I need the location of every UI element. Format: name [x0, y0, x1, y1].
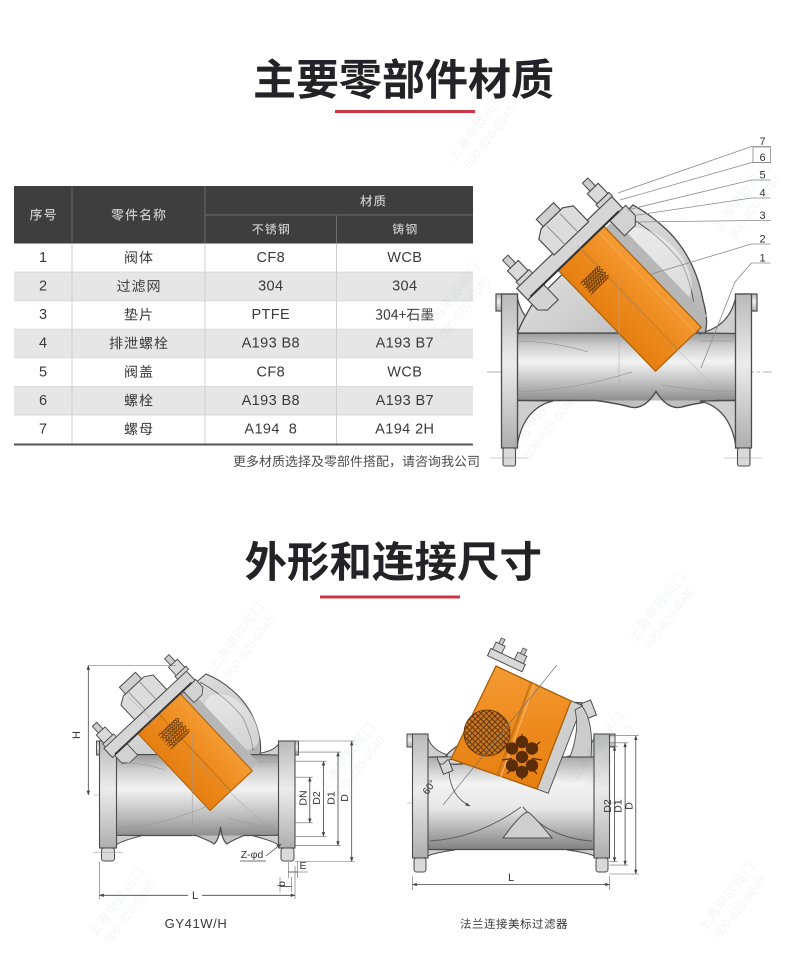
- svg-text:A193 B8: A193 B8: [242, 393, 300, 409]
- svg-text:A193 B7: A193 B7: [376, 336, 434, 352]
- svg-text:A194 8: A194 8: [244, 422, 297, 438]
- svg-text:3: 3: [759, 210, 765, 222]
- svg-text:D: D: [623, 802, 635, 810]
- svg-text:A193 B8: A193 B8: [242, 336, 300, 352]
- svg-text:Z-φd: Z-φd: [241, 849, 264, 861]
- svg-text:7: 7: [39, 422, 47, 438]
- svg-text:CF8: CF8: [257, 250, 286, 266]
- svg-text:2: 2: [759, 234, 765, 246]
- svg-text:7: 7: [759, 136, 765, 148]
- svg-text:5: 5: [39, 364, 47, 380]
- svg-text:304: 304: [392, 279, 417, 295]
- svg-text:DN: DN: [297, 790, 309, 805]
- svg-text:2: 2: [39, 279, 47, 295]
- svg-text:WCB: WCB: [387, 364, 422, 380]
- svg-text:A194 2H: A194 2H: [375, 422, 434, 438]
- svg-text:b: b: [276, 881, 288, 887]
- svg-text:L: L: [508, 872, 514, 884]
- svg-text:6: 6: [39, 393, 47, 409]
- svg-text:WCB: WCB: [387, 250, 422, 266]
- svg-text:1: 1: [39, 250, 47, 266]
- svg-text:3: 3: [39, 307, 47, 323]
- svg-text:304: 304: [258, 279, 283, 295]
- svg-text:1: 1: [759, 253, 765, 265]
- svg-text:CF8: CF8: [257, 364, 286, 380]
- svg-text:PTFE: PTFE: [251, 307, 290, 323]
- svg-text:H: H: [71, 731, 83, 739]
- svg-text:L: L: [192, 890, 198, 902]
- svg-text:D2: D2: [311, 791, 323, 805]
- svg-text:A193 B7: A193 B7: [376, 393, 434, 409]
- svg-text:E: E: [299, 860, 306, 872]
- svg-text:4: 4: [39, 336, 47, 352]
- svg-text:GY41W/H: GY41W/H: [165, 916, 228, 931]
